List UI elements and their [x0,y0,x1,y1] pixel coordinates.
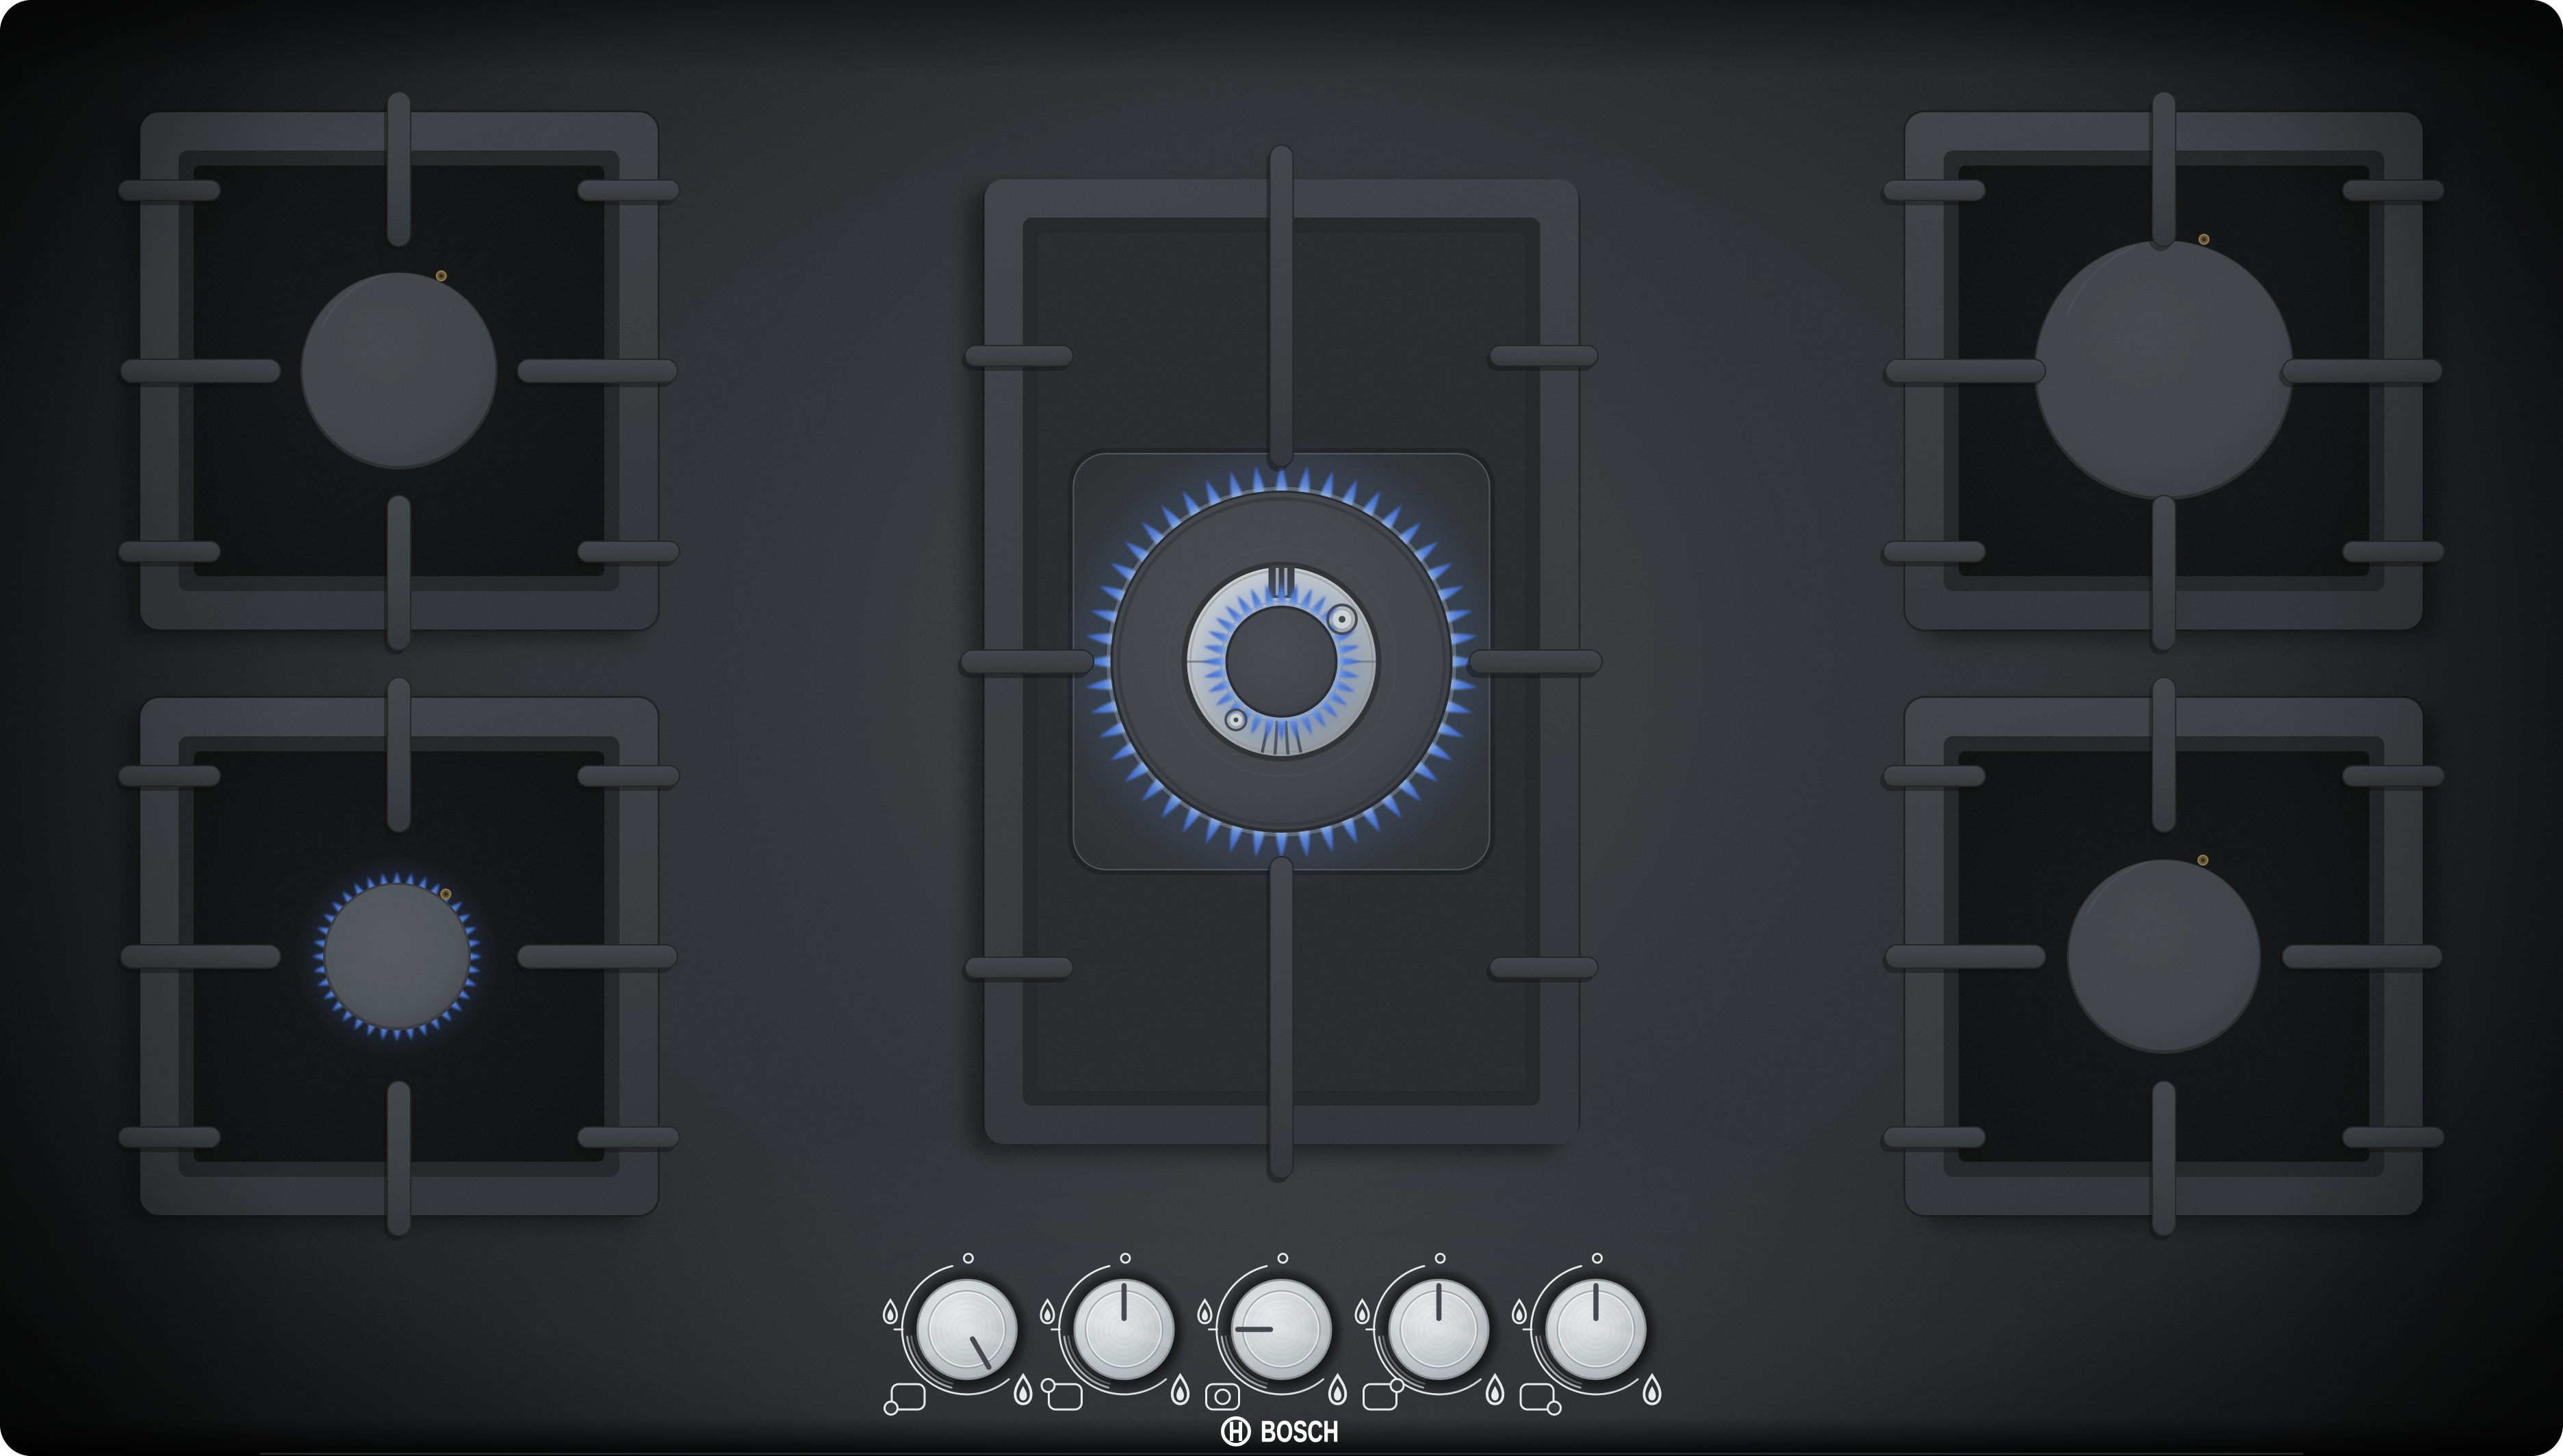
svg-text:BOSCH: BOSCH [1261,1415,1339,1448]
